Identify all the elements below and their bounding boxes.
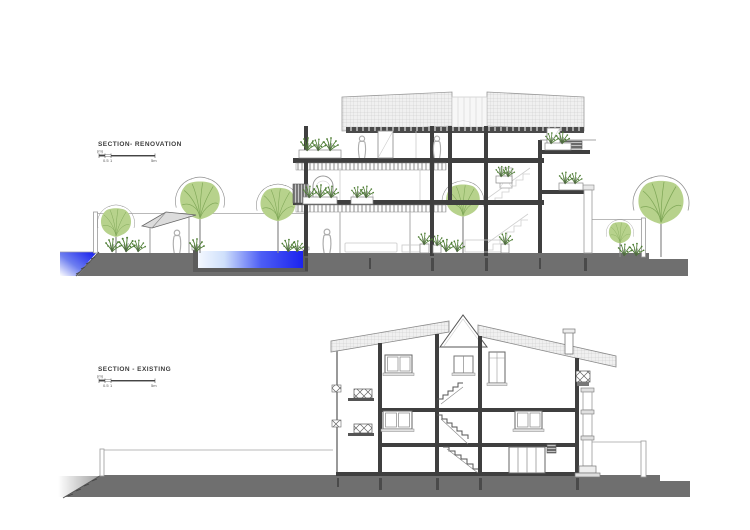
boundary-post-left — [94, 212, 98, 253]
fan-tree-small — [606, 220, 634, 244]
drawing-sheet: SECTION- RENOVATION (m) 0.5 1 5m SECTION… — [0, 0, 750, 530]
existing-building — [331, 315, 616, 490]
existing-scalebar: (m) 0.5 1 5m — [97, 374, 163, 389]
roof-glass-link — [452, 97, 487, 127]
pool-water — [198, 251, 303, 268]
scalebar-unit: (m) — [97, 149, 104, 154]
scalebar-tick: 1 — [110, 383, 113, 388]
railing-band-upper — [296, 163, 446, 170]
existing-ground — [58, 474, 690, 498]
scalebar-tick: 1 — [110, 158, 113, 163]
person-figure — [173, 230, 180, 253]
renovation-ground — [60, 252, 688, 276]
court-pillar — [584, 190, 592, 253]
staircase — [437, 383, 478, 469]
balcony-rail — [354, 424, 372, 433]
roof-left — [331, 321, 449, 352]
scalebar-tick: 0.5 — [103, 158, 109, 163]
scalebar-tick: 5m — [151, 158, 157, 163]
swimming-pool — [192, 247, 309, 272]
renovation-building — [293, 92, 596, 256]
scalebar-tick: 5m — [151, 383, 157, 388]
person-figure — [433, 136, 440, 158]
renovation-title: SECTION- RENOVATION — [98, 141, 182, 148]
chimney — [565, 331, 573, 354]
sections-canvas — [0, 0, 750, 530]
person-figure — [358, 136, 365, 158]
railing-band-mid — [296, 205, 446, 212]
slab-upper — [293, 158, 544, 163]
roof-right — [487, 92, 584, 131]
person-figure — [323, 229, 331, 253]
balcony-rail — [354, 389, 372, 398]
windows — [381, 352, 556, 473]
scalebar-tick: 0.5 — [103, 383, 109, 388]
roof-left — [342, 92, 452, 131]
fan-tree — [97, 205, 134, 237]
existing-section — [58, 315, 690, 498]
renovation-scalebar: (m) 0.5 1 5m — [97, 149, 163, 164]
existing-title: SECTION - EXISTING — [98, 366, 171, 373]
renovation-section — [60, 92, 689, 276]
scalebar-unit: (m) — [97, 374, 104, 379]
fan-tree-large — [633, 176, 689, 224]
pergola-canopy — [142, 212, 196, 253]
